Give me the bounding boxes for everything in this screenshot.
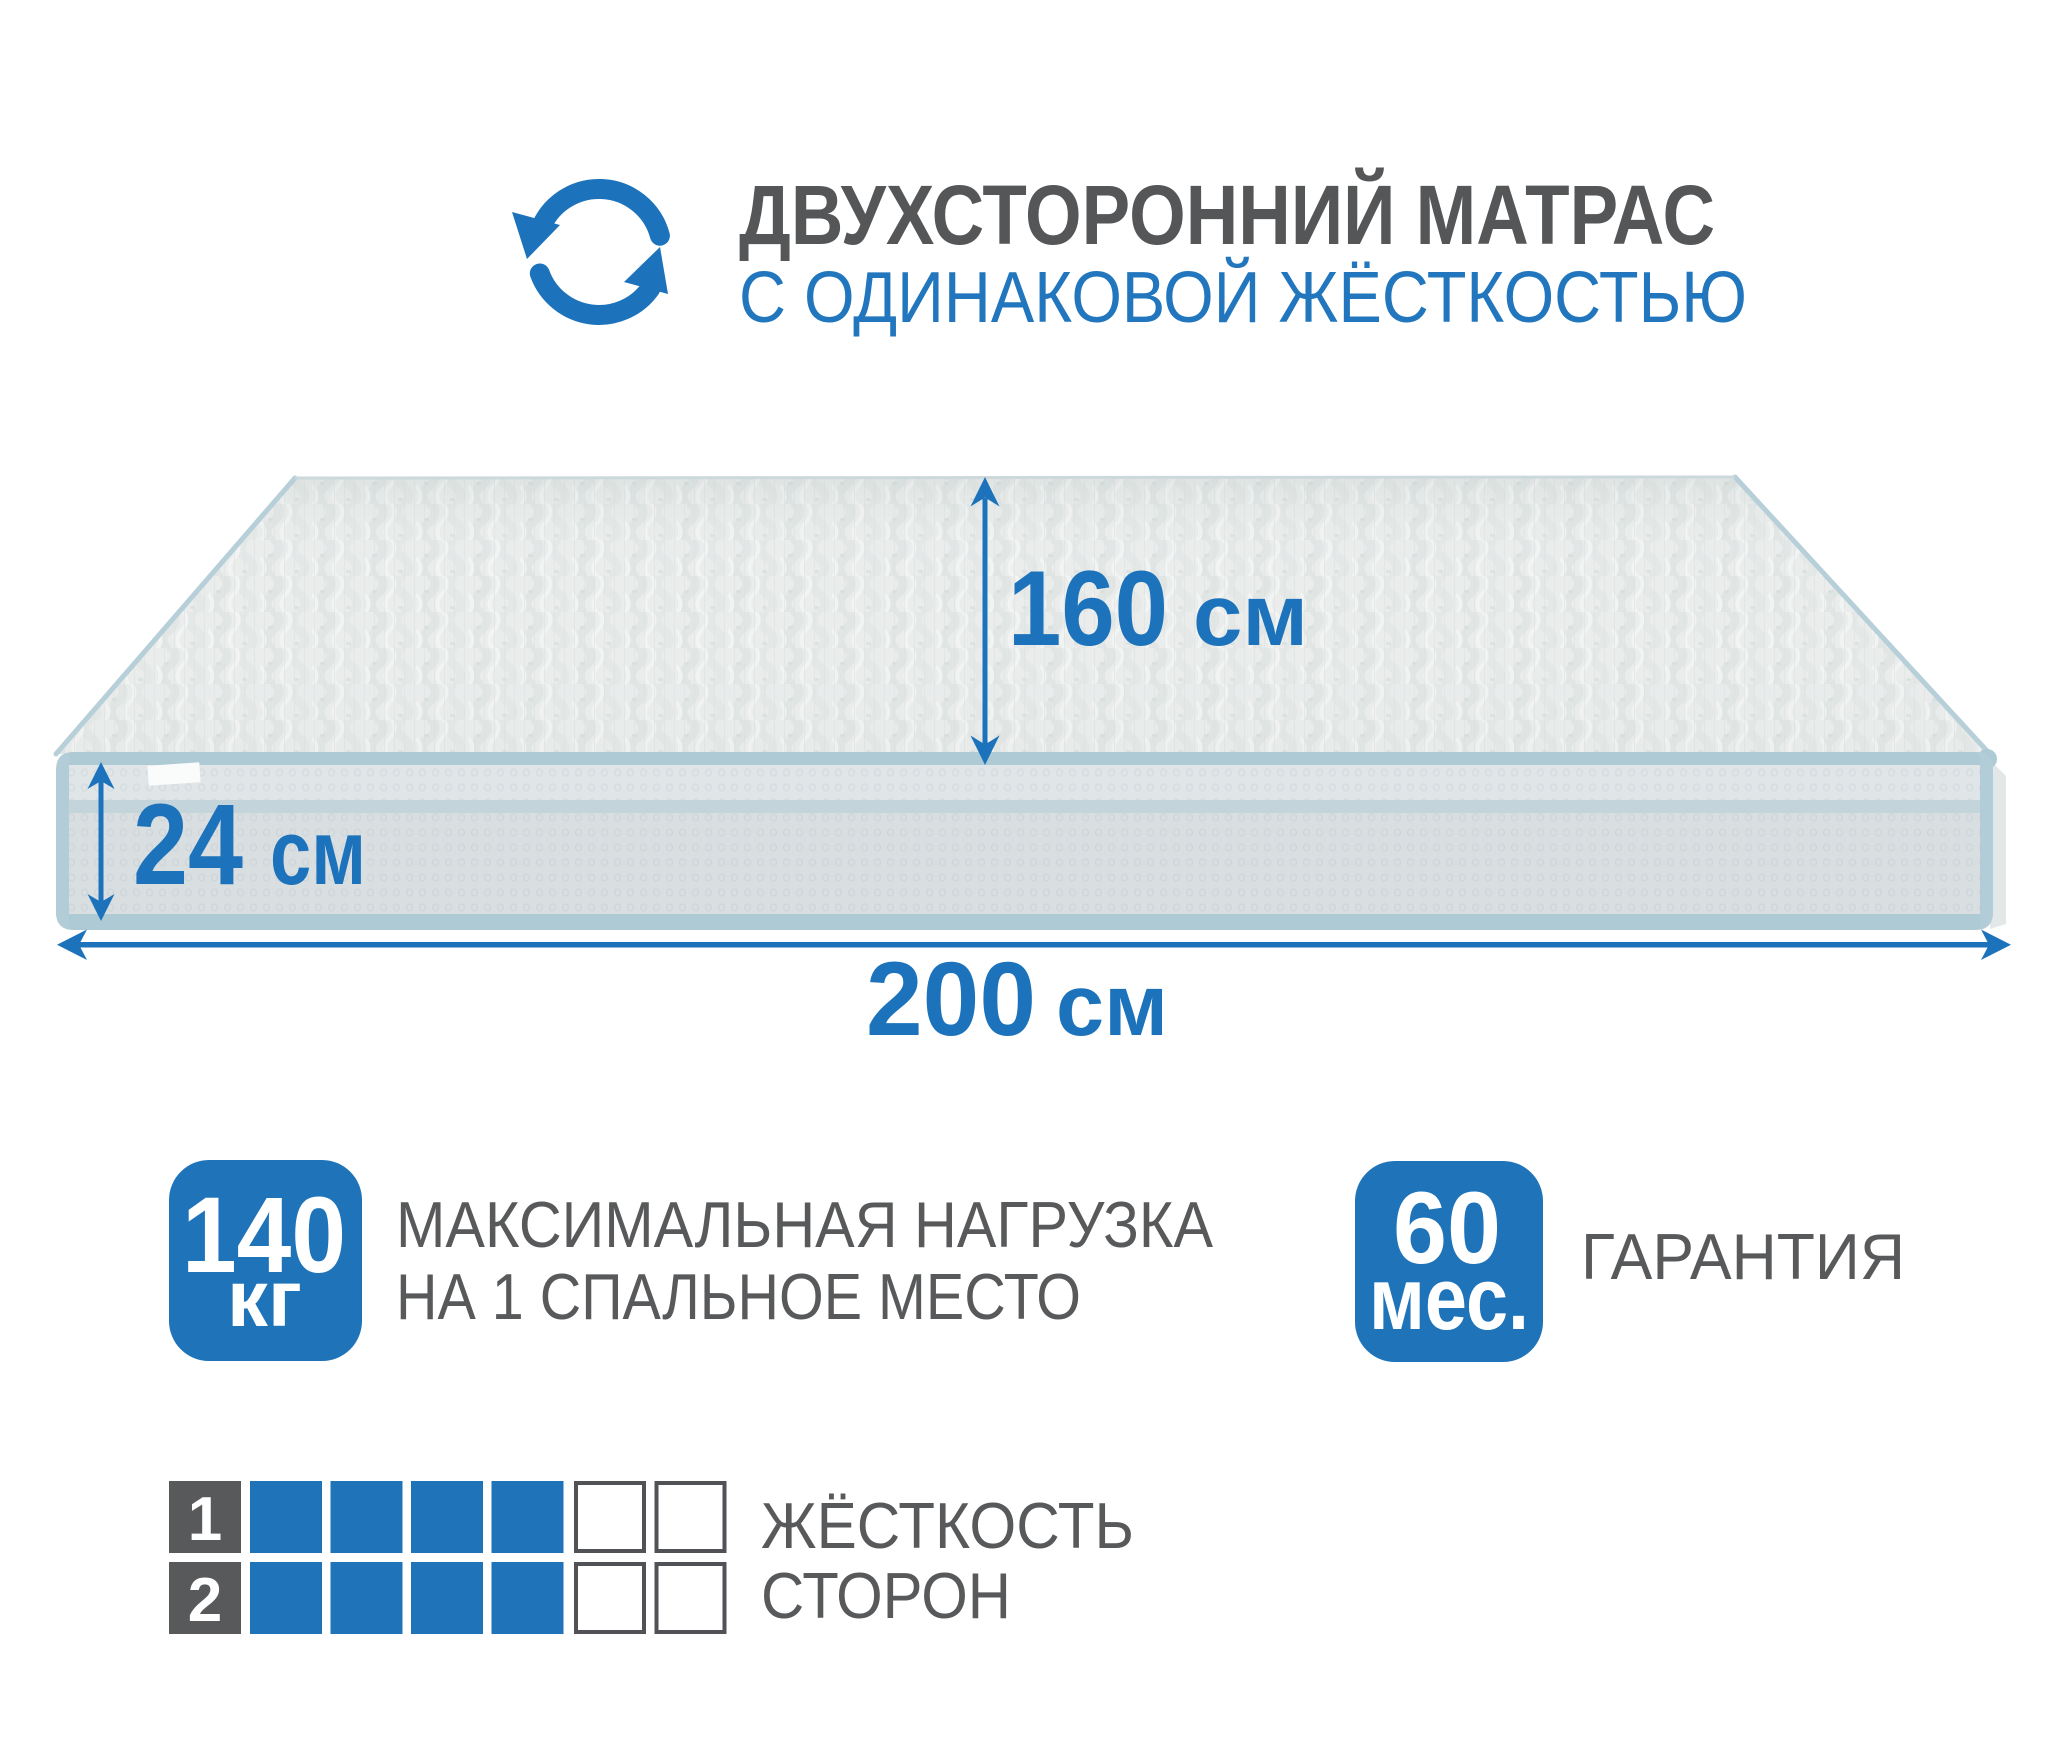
svg-text:24: 24 xyxy=(133,781,243,909)
svg-text:МАКСИМАЛЬНАЯ НАГРУЗКА: МАКСИМАЛЬНАЯ НАГРУЗКА xyxy=(396,1188,1214,1261)
svg-text:НА 1 СПАЛЬНОЕ МЕСТО: НА 1 СПАЛЬНОЕ МЕСТО xyxy=(396,1260,1081,1333)
svg-text:160: 160 xyxy=(1008,548,1168,668)
svg-text:С ОДИНАКОВОЙ ЖЁСТКОСТЬЮ: С ОДИНАКОВОЙ ЖЁСТКОСТЬЮ xyxy=(739,256,1747,338)
svg-text:ГАРАНТИЯ: ГАРАНТИЯ xyxy=(1581,1220,1905,1293)
svg-text:ДВУХСТОРОННИЙ МАТРАС: ДВУХСТОРОННИЙ МАТРАС xyxy=(739,168,1715,262)
svg-text:ЖЁСТКОСТЬ: ЖЁСТКОСТЬ xyxy=(761,1489,1134,1562)
svg-text:СТОРОН: СТОРОН xyxy=(761,1559,1011,1632)
svg-text:кг: кг xyxy=(227,1254,302,1343)
svg-text:см: см xyxy=(1056,957,1168,1054)
svg-text:200: 200 xyxy=(866,941,1036,1058)
svg-text:1: 1 xyxy=(188,1485,222,1554)
svg-text:мес.: мес. xyxy=(1369,1249,1529,1348)
svg-text:см: см xyxy=(270,802,366,904)
svg-text:см: см xyxy=(1193,567,1308,664)
svg-text:2: 2 xyxy=(188,1566,222,1635)
